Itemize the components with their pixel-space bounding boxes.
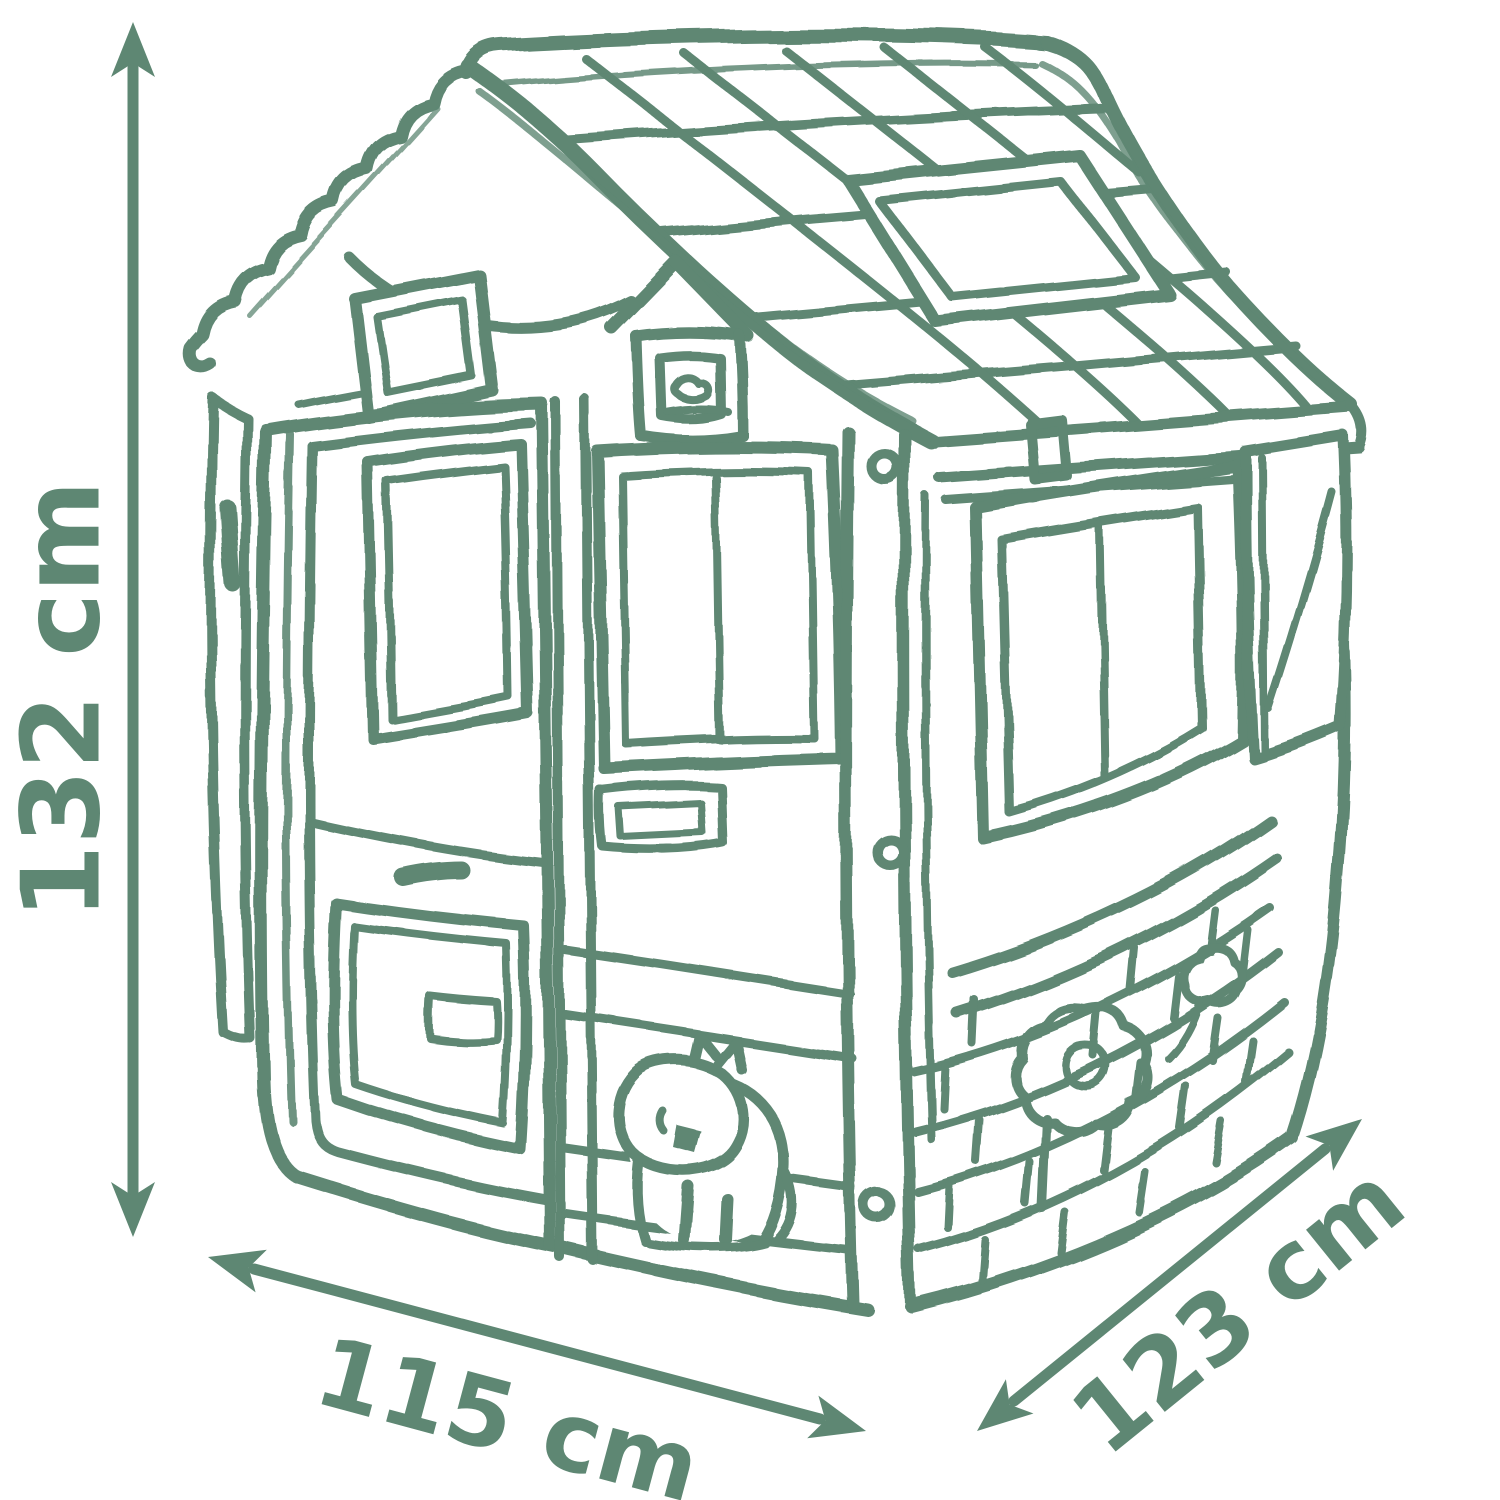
- height-dimension-arrow: 132 cm: [0, 22, 155, 1237]
- rivet: [871, 453, 897, 479]
- corner-post: [846, 432, 911, 1306]
- playhouse-dimension-sketch: 132 cm 115 cm 123 cm: [0, 0, 1500, 1500]
- roof-skylight: [848, 156, 1170, 322]
- front-window: [598, 448, 841, 849]
- width-dimension-label: 115 cm: [305, 1315, 711, 1500]
- cat-ear: [718, 1042, 742, 1070]
- gable-plate: [354, 274, 492, 417]
- height-dimension-label: 132 cm: [0, 480, 125, 920]
- rivet: [877, 839, 903, 865]
- cat-drawing: [619, 1036, 793, 1248]
- depth-dimension-label: 123 cm: [1051, 1144, 1425, 1477]
- door-jamb: [556, 400, 593, 1260]
- door-handle: [403, 870, 461, 877]
- rivet: [865, 1193, 891, 1219]
- cat-eye: [659, 1110, 663, 1130]
- side-handle: [228, 508, 233, 584]
- product-dimension-diagram: 132 cm 115 cm 123 cm: [0, 0, 1500, 1500]
- playhouse-sketch: [189, 35, 1363, 1310]
- left-side-panel: [211, 398, 250, 1039]
- bird-icon: [675, 378, 709, 399]
